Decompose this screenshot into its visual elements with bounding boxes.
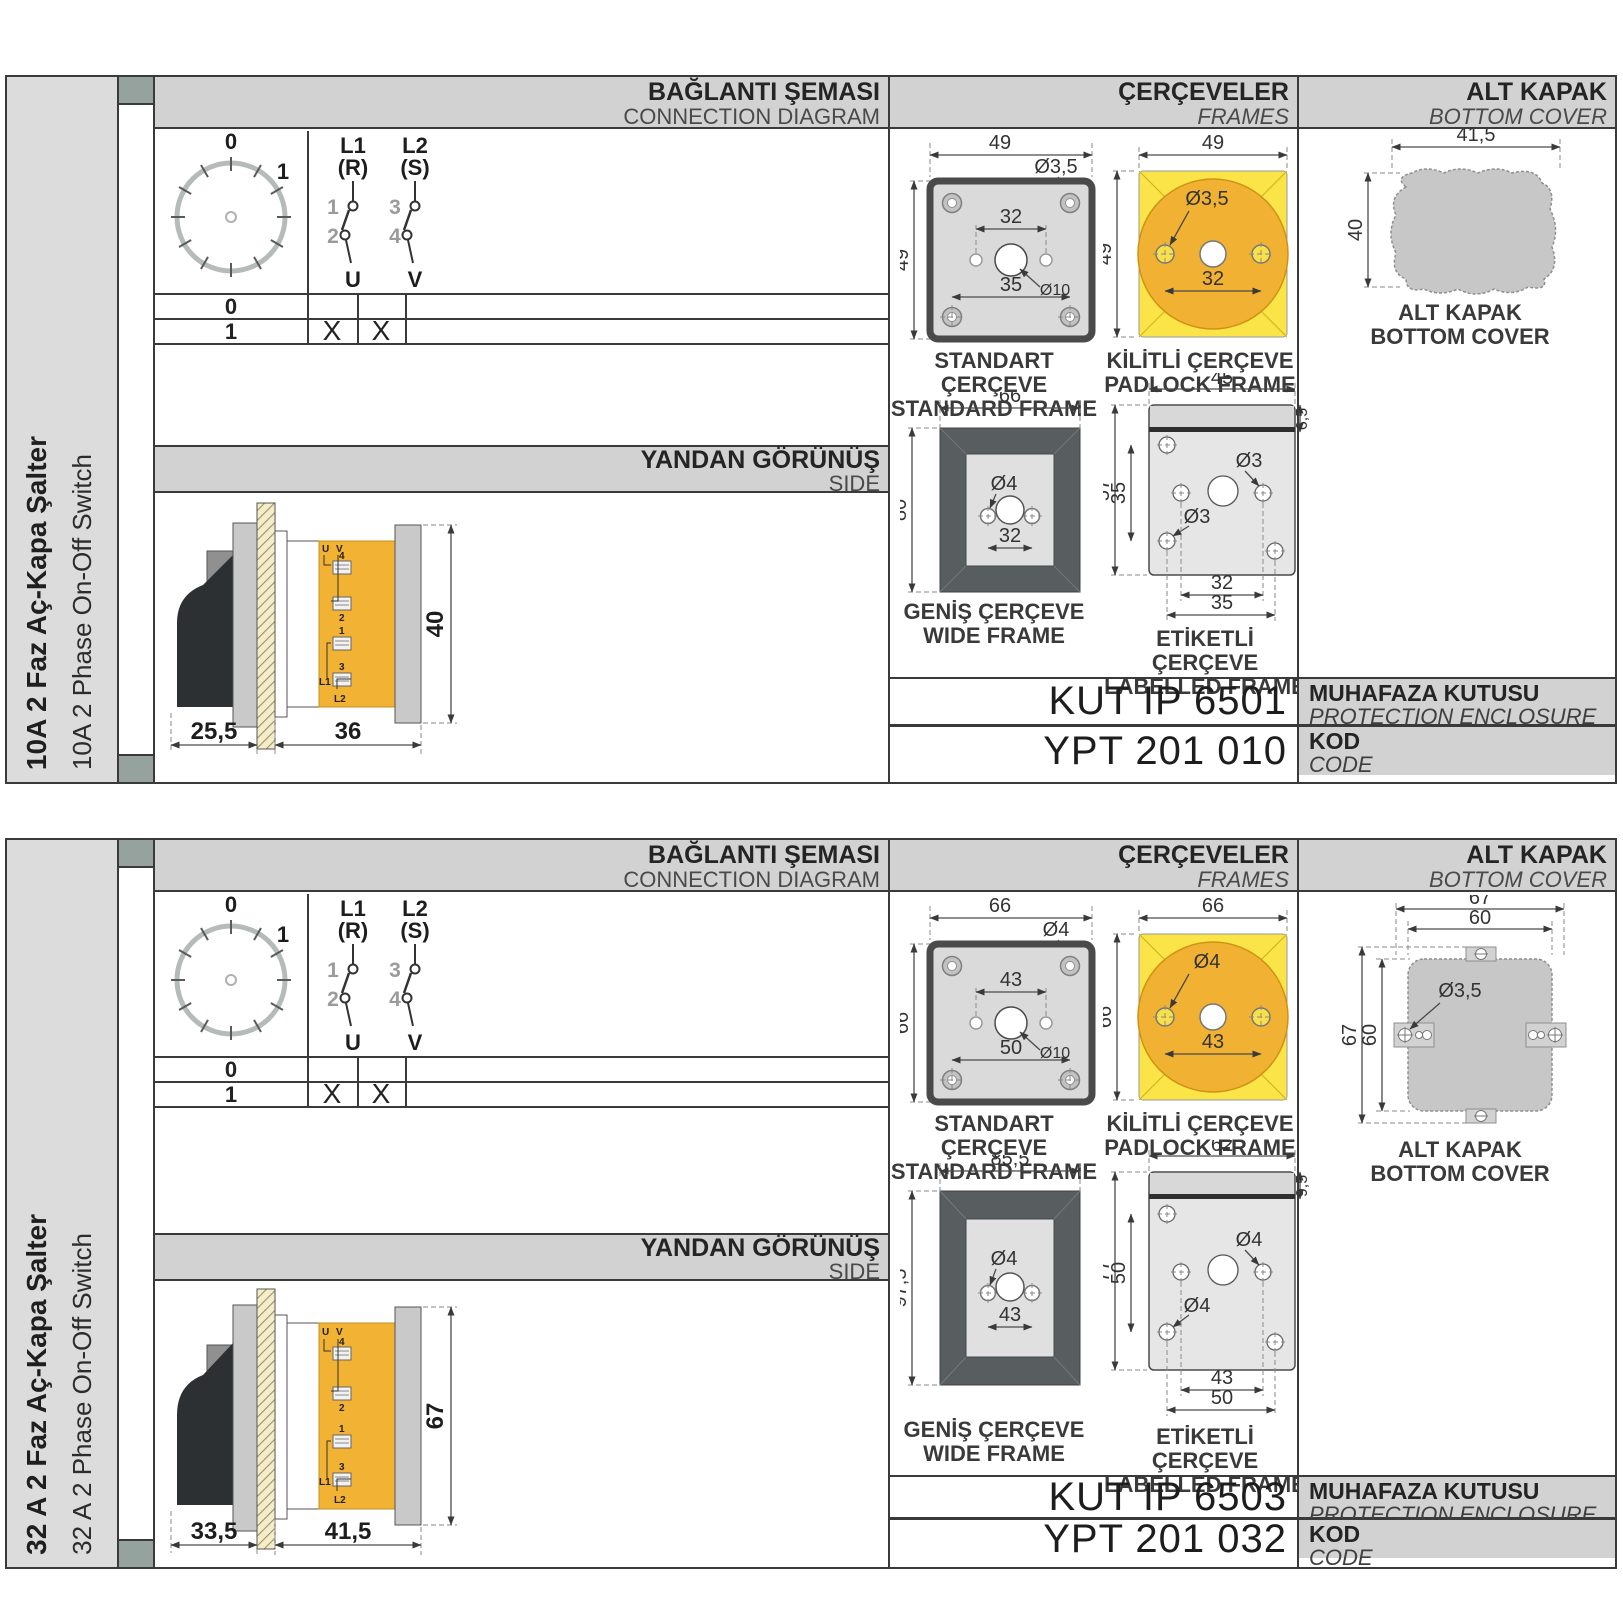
pole1-phase: (R) [338, 918, 369, 943]
terminal-u: U [345, 1030, 361, 1055]
wide-frame-caption: GENİŞ ÇERÇEVE WIDE FRAME [888, 1418, 1100, 1466]
cover-shape [1391, 169, 1556, 294]
dim-w: 66 [999, 392, 1021, 407]
side-band-tr: YANDAN GÖRÜNÜŞ [155, 1236, 880, 1261]
header-cover-en: BOTTOM COVER [1299, 868, 1607, 891]
dim-height: 67 [422, 1403, 449, 1430]
dim-h: 66 [900, 1012, 913, 1034]
sv-label-u: U [322, 1327, 329, 1338]
pole1-phase: (R) [338, 155, 369, 180]
code-tr: KOD [1309, 729, 1607, 753]
contact-2: 2 [327, 988, 339, 1011]
caption-tr: GENİŞ ÇERÇEVE [888, 1418, 1100, 1442]
caption-tr: ALT KAPAK [1305, 301, 1615, 325]
table-row0-label: 0 [155, 1058, 307, 1081]
dim-body: 36 [335, 718, 362, 745]
enclosure-code: KUT IP 6501 [888, 679, 1297, 724]
product-section-32a: 32 A 2 Faz Aç-Kapa Şalter 32 A 2 Phase O… [5, 838, 1617, 1569]
header-connection-tr: BAĞLANTI ŞEMASI [155, 842, 880, 868]
enclosure-en: PROTECTION ENCLOSURE [1309, 705, 1607, 728]
dim-h2: 60 [1359, 1024, 1381, 1046]
product-code: YPT 201 032 [888, 1520, 1297, 1558]
dim-outer: 50 [1000, 1037, 1022, 1059]
pole2-symbol [403, 944, 420, 1026]
tab-column [119, 77, 155, 782]
caption-tr: STANDART ÇERÇEVE [888, 349, 1100, 397]
labelled-frame-drawing: 45 6,5 57 35 Ø3 [1103, 373, 1309, 623]
dim-w2: 60 [1469, 907, 1491, 929]
table-x-u: X [307, 1082, 357, 1106]
dim-hole: Ø4 [991, 473, 1018, 495]
dim-inner: 32 [1211, 572, 1233, 594]
padlock-frame-drawing: 49 49 Ø3,5 32 [1103, 133, 1295, 345]
bottom-cover-caption: ALT KAPAK BOTTOM COVER [1305, 301, 1615, 349]
header-cover: ALT KAPAK BOTTOM COVER [1299, 77, 1615, 129]
dim-h: 40 [1345, 219, 1367, 241]
dim-h: 49 [900, 249, 913, 271]
caption-en: WIDE FRAME [888, 624, 1100, 648]
bottom-cover-drawing: 41,5 40 [1320, 129, 1620, 297]
dim-w: 62 [1211, 1140, 1233, 1156]
table-x-v: X [357, 319, 405, 343]
dim-hole2: Ø3 [1184, 506, 1211, 528]
dim-w: 41,5 [1457, 129, 1496, 146]
sv-label-3: 3 [339, 1462, 345, 1473]
bottom-cover-caption: ALT KAPAK BOTTOM COVER [1305, 1138, 1615, 1186]
contact-3: 3 [389, 959, 401, 982]
side-band-tr: YANDAN GÖRÜNÜŞ [155, 448, 880, 473]
dim-hole: Ø3,5 [1185, 188, 1228, 210]
dim-hole1: Ø4 [1236, 1229, 1263, 1251]
code-tr: KOD [1309, 1522, 1607, 1546]
switch-handle [177, 1343, 233, 1505]
dim-outer: 35 [1000, 274, 1022, 296]
contact-1: 1 [327, 959, 339, 982]
dim-handle: 25,5 [191, 718, 238, 745]
header-connection-en: CONNECTION DIAGRAM [155, 105, 880, 128]
code-desc: KOD CODE [1297, 727, 1615, 775]
side-view-drawing: U V 4 2 1 3 L1 L2 40 25,5 36 [161, 497, 611, 762]
caption-tr: ETİKETLİ ÇERÇEVE [1100, 627, 1310, 675]
dim-inner: 43 [1211, 1367, 1233, 1389]
enclosure-desc: MUHAFAZA KUTUSU PROTECTION ENCLOSURE [1297, 1477, 1615, 1517]
side-view-band: YANDAN GÖRÜNÜŞ SIDE [155, 445, 888, 493]
code-row: YPT 201 010 KOD CODE [888, 727, 1615, 775]
dim-tab: 6,5 [1294, 408, 1309, 430]
header-frames-tr: ÇERÇEVELER [890, 79, 1289, 105]
pole1-symbol [341, 181, 358, 263]
dim-hole: Ø3,5 [1034, 156, 1077, 178]
sv-label-4: 4 [339, 551, 345, 562]
header-cover-tr: ALT KAPAK [1299, 842, 1607, 868]
code-en: CODE [1309, 753, 1607, 776]
tab-square-bottom [119, 754, 153, 782]
table-row0-label: 0 [155, 295, 307, 318]
sv-label-2: 2 [339, 1403, 345, 1414]
enclosure-tr: MUHAFAZA KUTUSU [1309, 1479, 1607, 1503]
dial-pos-1: 1 [277, 159, 289, 184]
table-divider [307, 894, 309, 1108]
dim-height: 40 [422, 611, 449, 638]
switch-schematic: L1 (R) L2 (S) 1 [309, 131, 609, 293]
sv-label-1: 1 [339, 626, 345, 637]
enclosure-code: KUT IP 6503 [888, 1477, 1297, 1517]
header-frames: ÇERÇEVELER FRAMES [890, 840, 1297, 892]
dim-inner: 43 [999, 1304, 1021, 1326]
code-rows: KUT IP 6501 MUHAFAZA KUTUSU PROTECTION E… [888, 677, 1615, 782]
terminal-v: V [408, 267, 423, 292]
tab-square-top [119, 77, 153, 105]
contact-4: 4 [389, 988, 401, 1011]
caption-tr: GENİŞ ÇERÇEVE [888, 600, 1100, 624]
side-band-en: SIDE [155, 473, 880, 495]
caption-tr: KİLİTLİ ÇERÇEVE [1100, 349, 1300, 373]
sv-label-l1: L1 [319, 677, 331, 688]
header-frames: ÇERÇEVELER FRAMES [890, 77, 1297, 129]
sv-label-3: 3 [339, 662, 345, 673]
caption-en: BOTTOM COVER [1305, 1162, 1615, 1186]
side-view-band: YANDAN GÖRÜNÜŞ SIDE [155, 1233, 888, 1281]
enclosure-desc: MUHAFAZA KUTUSU PROTECTION ENCLOSURE [1297, 679, 1615, 724]
header-frames-en: FRAMES [890, 868, 1289, 891]
product-title-tr: 32 A 2 Faz Aç-Kapa Şalter [21, 1214, 53, 1555]
header-frames-en: FRAMES [890, 105, 1289, 128]
wide-frame-drawing: 66 80 Ø4 32 [900, 392, 1096, 597]
switch-schematic: L1 (R) L2 (S) 1 [309, 894, 609, 1056]
caption-tr: STANDART ÇERÇEVE [888, 1112, 1100, 1160]
dim-w: 85,5 [991, 1155, 1030, 1170]
dim-w: 49 [1202, 133, 1224, 154]
dial-pos-0: 0 [225, 894, 237, 917]
header-frames-tr: ÇERÇEVELER [890, 842, 1289, 868]
enclosure-tr: MUHAFAZA KUTUSU [1309, 681, 1607, 705]
pole2-phase: (S) [400, 155, 429, 180]
bottom-cover-drawing: 67 60 67 60 [1320, 895, 1620, 1135]
caption-tr: KİLİTLİ ÇERÇEVE [1100, 1112, 1300, 1136]
product-title-tr: 10A 2 Faz Aç-Kapa Şalter [21, 436, 53, 770]
dim-mid: 50 [1108, 1262, 1130, 1284]
dim-hole1: Ø3 [1236, 450, 1263, 472]
table-row1-label: 1 [155, 1083, 307, 1106]
side-band-en: SIDE [155, 1261, 880, 1283]
dim-w: 66 [1202, 896, 1224, 917]
wide-frame-drawing: 85,5 97,5 Ø4 43 [900, 1155, 1096, 1390]
caption-en: BOTTOM COVER [1305, 325, 1615, 349]
product-sidebar: 32 A 2 Faz Aç-Kapa Şalter 32 A 2 Phase O… [7, 840, 119, 1567]
dim-h: 66 [1103, 1006, 1116, 1028]
dim-h: 49 [1103, 243, 1116, 265]
table-row1-label: 1 [155, 320, 307, 343]
dial-pos-1: 1 [277, 922, 289, 947]
header-cover-en: BOTTOM COVER [1299, 105, 1607, 128]
padlock-frame-drawing: 66 66 Ø4 43 [1103, 896, 1295, 1108]
code-en: CODE [1309, 1546, 1607, 1569]
sv-label-4: 4 [339, 1337, 345, 1348]
table-x-u: X [307, 319, 357, 343]
tab-square-top [119, 840, 153, 868]
pole2-phase: (S) [400, 918, 429, 943]
terminal-u: U [345, 267, 361, 292]
dim-h: 97,5 [900, 1269, 911, 1308]
dim-w: 49 [989, 133, 1011, 154]
section-main: BAĞLANTI ŞEMASI CONNECTION DIAGRAM ÇERÇE… [155, 77, 1615, 782]
dim-hole: Ø3,5 [1438, 980, 1481, 1002]
sv-label-l2: L2 [334, 1495, 346, 1506]
dial-diagram: 0 1 [155, 131, 307, 293]
contact-4: 4 [389, 225, 401, 248]
dim-outer: 35 [1211, 592, 1233, 614]
dim-mid: 35 [1108, 482, 1130, 504]
dim-hole: Ø4 [1194, 951, 1221, 973]
side-view-drawing: U V 4 2 1 3 L1 L2 67 33,5 41,5 [161, 1285, 611, 1561]
labelled-frame-drawing: 62 9,5 77 50 Ø4 [1103, 1140, 1309, 1420]
dial-pos-0: 0 [225, 131, 237, 154]
dim-body: 41,5 [325, 1518, 372, 1545]
dim-outer: 50 [1211, 1387, 1233, 1409]
product-title-en: 10A 2 Phase On-Off Switch [67, 454, 98, 770]
terminal-v: V [408, 1030, 423, 1055]
header-connection: BAĞLANTI ŞEMASI CONNECTION DIAGRAM [155, 77, 888, 129]
table-line [155, 1106, 888, 1108]
contact-3: 3 [389, 196, 401, 219]
sv-label-l1: L1 [319, 1477, 331, 1488]
tab-square-bottom [119, 1539, 153, 1567]
header-cover: ALT KAPAK BOTTOM COVER [1299, 840, 1615, 892]
pole2-symbol [403, 181, 420, 263]
dim-inner: 43 [1000, 969, 1022, 991]
product-sidebar: 10A 2 Faz Aç-Kapa Şalter 10A 2 Phase On-… [7, 77, 119, 782]
dim-inner: 32 [1202, 268, 1224, 290]
table-line [155, 343, 888, 345]
dim-inner: 43 [1202, 1031, 1224, 1053]
dim-hole: Ø4 [991, 1248, 1018, 1270]
header-connection-en: CONNECTION DIAGRAM [155, 868, 880, 891]
header-connection-tr: BAĞLANTI ŞEMASI [155, 79, 880, 105]
code-row: YPT 201 032 KOD CODE [888, 1520, 1615, 1558]
dim-handle: 33,5 [191, 1518, 238, 1545]
product-section-10a: 10A 2 Faz Aç-Kapa Şalter 10A 2 Phase On-… [5, 75, 1617, 784]
table-divider [307, 131, 309, 345]
switch-handle [177, 555, 233, 707]
standard-frame-drawing: 49 Ø3,5 49 32 Ø10 [900, 133, 1096, 345]
tab-column [119, 840, 155, 1567]
sv-label-2: 2 [339, 613, 345, 624]
table-x-v: X [357, 1082, 405, 1106]
standard-frame-drawing: 66 Ø4 66 43 Ø10 [900, 896, 1096, 1108]
dim-w: 66 [989, 896, 1011, 917]
caption-tr: ETİKETLİ ÇERÇEVE [1100, 1425, 1310, 1473]
header-connection: BAĞLANTI ŞEMASI CONNECTION DIAGRAM [155, 840, 888, 892]
caption-tr: ALT KAPAK [1305, 1138, 1615, 1162]
catalog-page: 10A 2 Faz Aç-Kapa Şalter 10A 2 Phase On-… [0, 0, 1623, 1623]
header-cover-tr: ALT KAPAK [1299, 79, 1607, 105]
dim-hole2: Ø4 [1184, 1295, 1211, 1317]
code-rows: KUT IP 6503 MUHAFAZA KUTUSU PROTECTION E… [888, 1475, 1615, 1567]
code-desc: KOD CODE [1297, 1520, 1615, 1558]
product-code: YPT 201 010 [888, 727, 1297, 775]
caption-en: WIDE FRAME [888, 1442, 1100, 1466]
contact-2: 2 [327, 225, 339, 248]
dim-inner: 32 [999, 525, 1021, 547]
dim-h1: 67 [1339, 1024, 1361, 1046]
dim-hole: Ø4 [1043, 919, 1070, 941]
enclosure-row: KUT IP 6501 MUHAFAZA KUTUSU PROTECTION E… [888, 677, 1615, 727]
sv-label-l2: L2 [334, 694, 346, 705]
pole1-symbol [341, 944, 358, 1026]
table-divider [405, 293, 407, 345]
dim-inner: 32 [1000, 206, 1022, 228]
dim-w: 45 [1211, 373, 1233, 389]
wide-frame-caption: GENİŞ ÇERÇEVE WIDE FRAME [888, 600, 1100, 648]
product-title-en: 32 A 2 Phase On-Off Switch [67, 1233, 98, 1555]
contact-1: 1 [327, 196, 339, 219]
table-divider [405, 1056, 407, 1108]
dim-h: 80 [900, 499, 911, 521]
section-main: BAĞLANTI ŞEMASI CONNECTION DIAGRAM ÇERÇE… [155, 840, 1615, 1567]
sv-label-1: 1 [339, 1424, 345, 1435]
sv-label-u: U [322, 544, 329, 555]
enclosure-row: KUT IP 6503 MUHAFAZA KUTUSU PROTECTION E… [888, 1475, 1615, 1520]
dial-diagram: 0 1 [155, 894, 307, 1056]
